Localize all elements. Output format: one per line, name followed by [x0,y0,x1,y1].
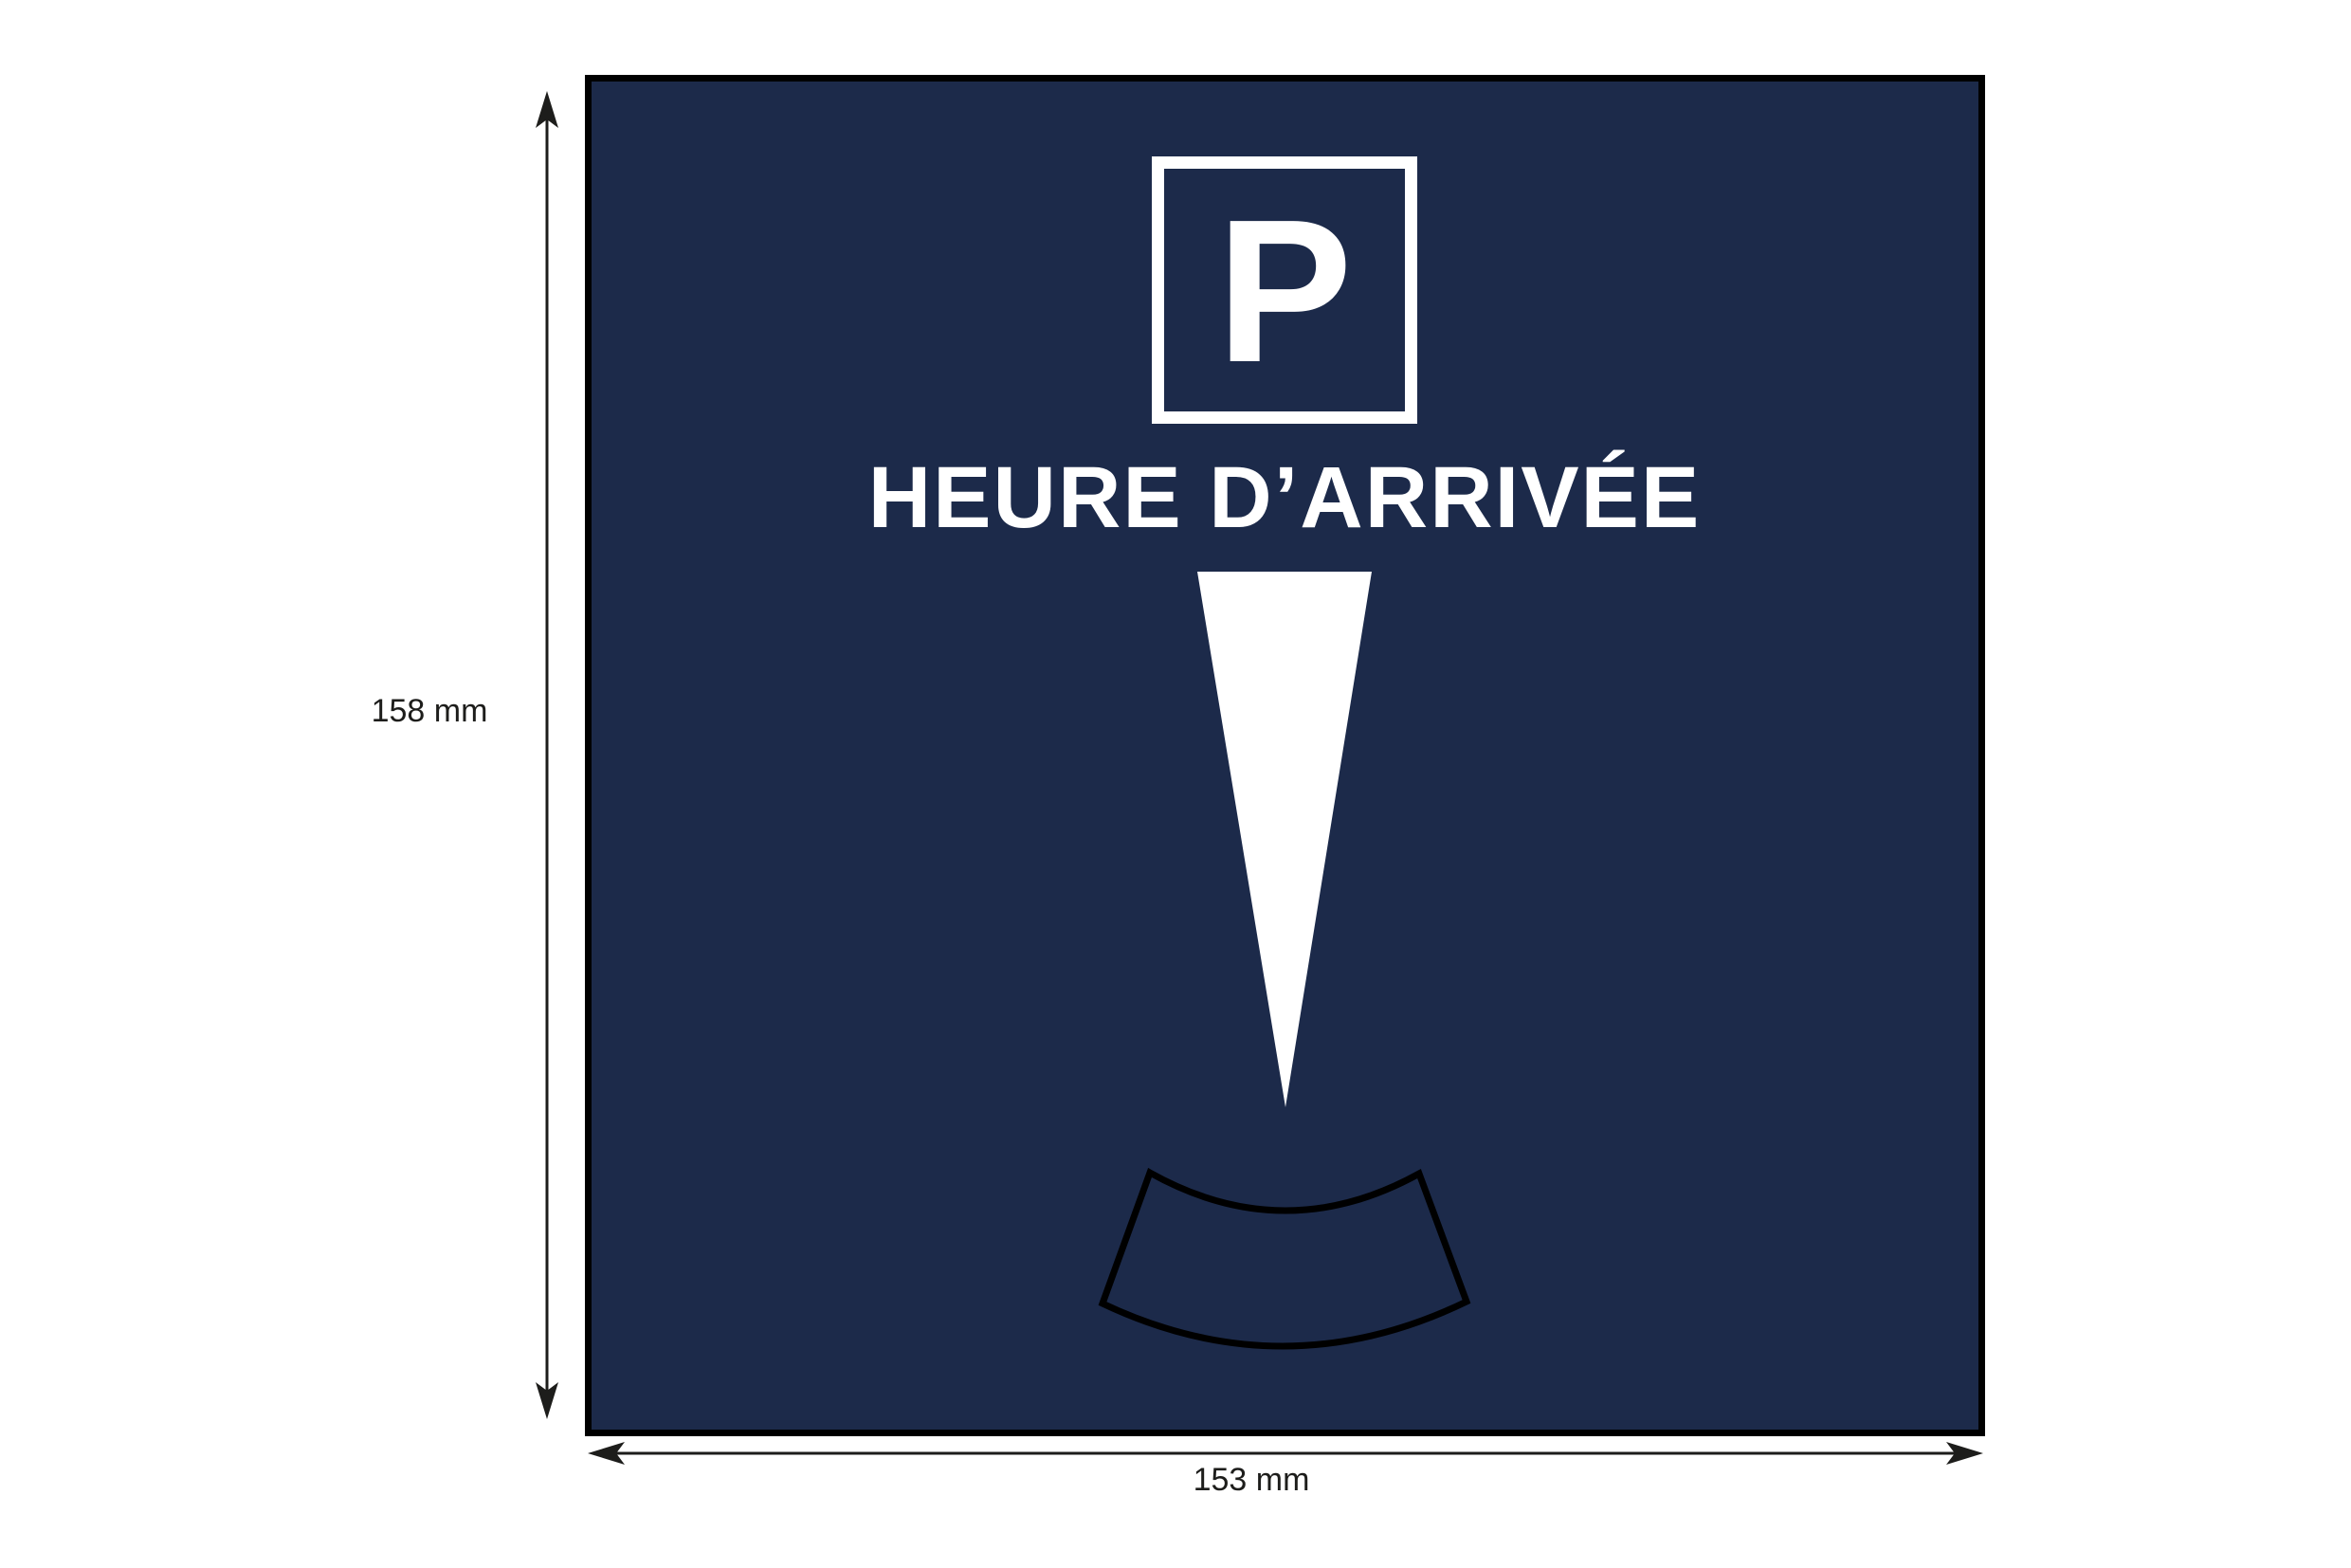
parking-sign-letter: P [1216,189,1352,392]
width-arrow-left-icon [588,1442,625,1465]
width-arrow-right-icon [1946,1442,1983,1465]
diagram-canvas: P HEURE D’ARRIVÉE 158 mm 153 mm [0,0,2351,1568]
width-dimension-label: 153 mm [1157,1459,1346,1501]
parking-sign-icon: P [1152,156,1417,424]
height-arrow-down-icon [536,1382,558,1419]
height-dimension-arrow-icon [536,91,558,1419]
height-arrow-up-icon [536,91,558,128]
card-title: HEURE D’ARRIVÉE [811,444,1759,553]
height-dimension-label: 158 mm [358,690,501,732]
